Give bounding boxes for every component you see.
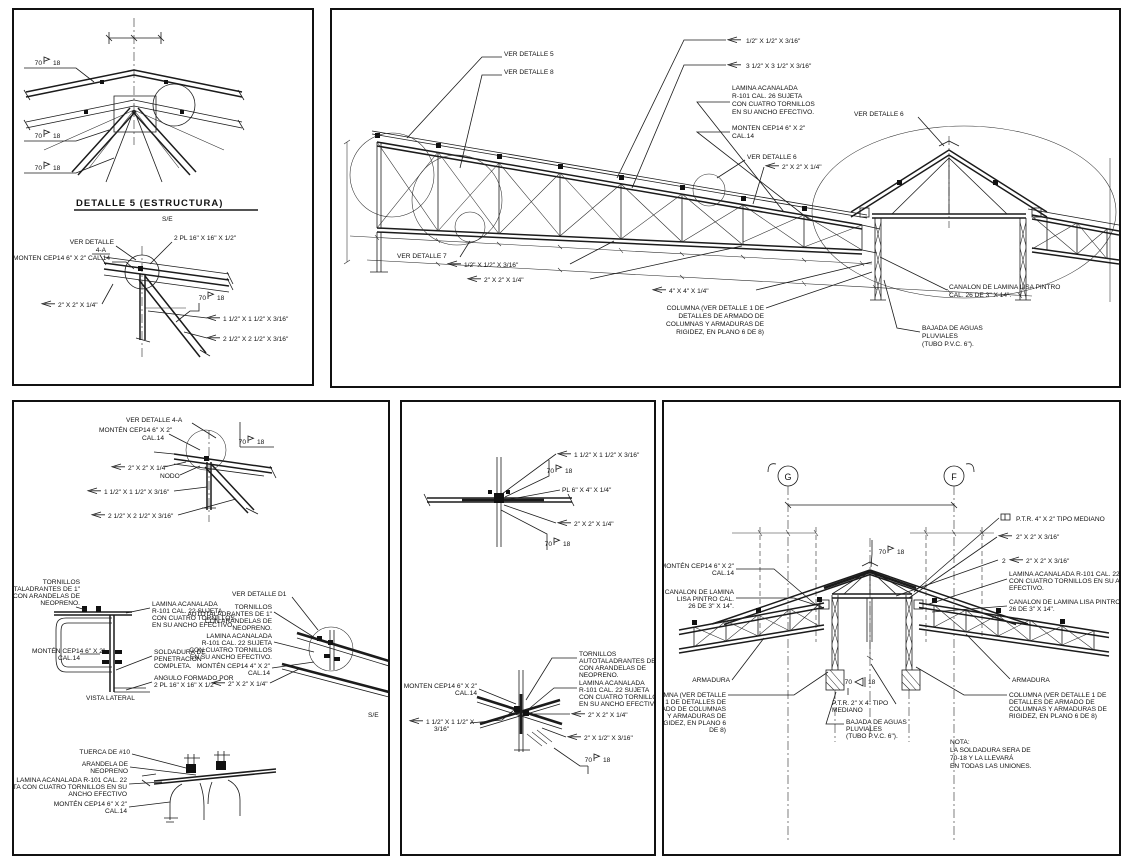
weld-mark-70: 70	[845, 679, 853, 686]
label-canalon: CANALON DE LAMINA LISA PINTRO	[949, 284, 1060, 291]
label-ptr-2x4: P.T.R. 2" X 4" TIPO	[832, 700, 888, 707]
detalle-d1-linework	[282, 627, 388, 697]
label-angle-2x2-316: 2" X 2" X 3/16"	[1026, 558, 1070, 565]
weld-mark-70: 70	[199, 295, 207, 302]
label-armadura-left: ARMADURA	[692, 677, 730, 684]
label-tornillos: CON ARANDELAS DE	[14, 593, 81, 600]
label-ver-detalle-6: VER DETALLE 6	[854, 111, 904, 118]
label-columna-left: ARMADO DE COLUMNAS	[664, 706, 727, 713]
label-bar-half-inch: 1/2" X 1/2" X 3/16"	[746, 38, 801, 45]
label-bajada-pluviales: PLUVIALES	[922, 333, 959, 340]
panel-detalles-nodo: VER DETALLE 4-A MONTÉN CEP14 6" X 2" CAL…	[12, 400, 390, 856]
label-bar-half-inch: 1/2" X 1/2" X 3/16"	[464, 262, 519, 269]
label-lamina: LAMINA ACANALADA	[152, 601, 218, 608]
label-arandela: NEOPRENO	[90, 768, 128, 775]
label-ver-detalle-5: VER DETALLE 5	[504, 51, 554, 58]
label-monten: CAL.14	[142, 435, 164, 442]
grid-bubble-f: F	[951, 472, 957, 482]
label-tornillos: TORNILLOS	[43, 579, 81, 586]
label-lamina-acanalada: LAMINA ACANALADA	[732, 85, 798, 92]
cad-sheet: { "sheet": {"background": "#ffffff", "li…	[0, 0, 1131, 867]
panel-corte-monitor: G F	[662, 400, 1121, 856]
label-columna-right: COLUMNA (VER DETALLE 1 DE	[1009, 692, 1107, 699]
label-columna-right: RIGIDEZ, EN PLANO 6 DE 8)	[1009, 713, 1097, 720]
label-monten-lateral: CAL.14	[58, 655, 80, 662]
label-angle-1-1-2: 1 1/2" X 1 1/2" X	[426, 719, 475, 726]
label-bajada-pluviales: (TUBO P.V.C. 6").	[846, 733, 898, 740]
label-tornillos: TORNILLOS	[579, 651, 617, 658]
elevacion-drawing: VER DETALLE 5 VER DETALLE 8 1/2" X 1/2" …	[332, 10, 1119, 386]
label-vista-lateral: VISTA LATERAL	[86, 695, 135, 702]
label-tornillos-d1: AUTOTALADRANTES DE 1"	[187, 611, 272, 618]
label-tornillos: NEOPRENO.	[579, 672, 619, 679]
label-lamina: EN SU ANCHO EFECTIVO.	[579, 701, 654, 708]
label-canalon-left: LISA PINTRO CAL.	[677, 596, 734, 603]
detalle-5-title-block: DETALLE 5 (ESTRUCTURA) S/E	[74, 198, 258, 223]
label-columna-left: COLUMNA (VER DETALLE	[664, 692, 727, 699]
label-angle-3-1-2: 3 1/2" X 3 1/2" X 3/16"	[746, 63, 812, 70]
label-canalon-right: CANALON DE LAMINA LISA PINTRO CAL.	[1009, 599, 1119, 606]
weld-mark-18: 18	[53, 165, 61, 172]
label-monten: MONTEN CEP14 6" X 2"	[732, 125, 806, 132]
label-ver-detalle-8: VER DETALLE 8	[504, 69, 554, 76]
label-lamina-d1: CON CUATRO TORNILLOS	[189, 647, 272, 654]
panel-elevacion-armadura: VER DETALLE 5 VER DETALLE 8 1/2" X 1/2" …	[330, 8, 1121, 388]
label-tornillos: NEOPRENO.	[40, 600, 80, 607]
panel-detalles-union: 1 1/2" X 1 1/2" X 3/16" 70 18 PL 6" X 4"…	[400, 400, 656, 856]
label-canalon-left: CANALON DE LAMINA	[665, 589, 735, 596]
weld-mark-70: 70	[35, 165, 43, 172]
label-plates: 2 PL 16" X 16" X 1/2"	[174, 235, 237, 242]
grid-bubble-g: G	[784, 472, 791, 482]
label-monten: MONTEN CEP14 6" X 2"	[404, 683, 478, 690]
label-monten-b: MONTÉN CEP14 6" X 2"	[54, 799, 128, 808]
label-lamina-acanalada: R-101 CAL. 26 SUJETA	[732, 93, 803, 100]
label-ptr-4x2: P.T.R. 4" X 2" TIPO MEDIANO	[1016, 516, 1105, 523]
label-columna-left: Y ARMADURAS DE	[667, 713, 726, 720]
label-columna: COLUMNAS Y ARMADURAS DE	[666, 321, 765, 328]
apex-node-linework	[24, 18, 244, 182]
panel-detalle-5: 70 18 70 18 70 18 DETALLE 5 (ESTRUCTURA)…	[12, 8, 314, 386]
label-lamina: R-101 CAL. 22 SUJETA	[579, 687, 650, 694]
label-monten: CAL.14	[455, 690, 477, 697]
detail-scale: S/E	[162, 216, 173, 223]
weld-mark-70: 70	[879, 549, 887, 556]
label-monten: MONTÉN CEP14 6" X 2"	[664, 561, 735, 570]
weld-mark-18: 18	[217, 295, 225, 302]
label-angle-1-1-2: 1 1/2" X 1 1/2" X 3/16"	[574, 452, 640, 459]
apex-node-weld-marks: 70 18 70 18 70 18	[24, 57, 114, 173]
label-bajada-pluviales: BAJADA DE AGUAS	[846, 719, 907, 726]
label-angle-2x2: 2" X 2" X 1/4"	[484, 277, 524, 284]
label-columna-right: DETALLES DE ARMADO DE	[1009, 699, 1095, 706]
weld-mark-18: 18	[53, 133, 61, 140]
label-lamina-b: SUJETA CON CUATRO TORNILLOS EN SU	[14, 784, 127, 791]
label-bajada-pluviales: (TUBO P.V.C. 6").	[922, 341, 974, 348]
label-canalon-right: 26 DE 3" X 14".	[1009, 606, 1055, 613]
weld-mark-70: 70	[545, 541, 553, 548]
label-lamina: EFECTIVO.	[1009, 585, 1044, 592]
label-tornillos: AUTOTALADRANTES DE 1"	[579, 658, 654, 665]
note-line: 70-18 Y LA LLEVARÁ	[950, 753, 1014, 762]
label-lamina-d1: R-101 CAL. 22 SUJETA	[202, 640, 273, 647]
label-lamina-acanalada: EN SU ANCHO EFECTIVO.	[732, 109, 814, 116]
label-angle-1-1-2: 1 1/2" X 1 1/2" X 3/16"	[223, 316, 289, 323]
label-monten-d1: MONTÉN CEP14 4" X 2"	[197, 661, 271, 670]
label-canalon: CAL. 26 DE 3" X 14".	[949, 292, 1011, 299]
lower-node-linework	[100, 246, 233, 358]
grid-lines: G F	[732, 464, 994, 842]
weld-mark-18: 18	[897, 549, 905, 556]
label-columna-left: 1 DE DETALLES DE	[665, 699, 726, 706]
label-lamina: CON CUATRO TORNILLOS	[579, 694, 654, 701]
label-nodo: NODO	[160, 473, 180, 480]
note-title: NOTA:	[950, 739, 970, 746]
label-tornillos: AUTOTALADRANTES DE 1"	[14, 586, 81, 593]
label-monten: MONTÉN CEP14 6" X 2"	[99, 425, 173, 434]
label-columna: RIGIDEZ, EN PLANO 6 DE 8)	[676, 329, 764, 336]
label-angulo-formado: ANGULO FORMADO POR	[154, 675, 234, 682]
label-angle-2x2: 2" X 2" X 1/4"	[574, 521, 614, 528]
label-monten-b: CAL.14	[105, 808, 127, 815]
label-lamina-b: LAMINA ACANALADA R-101 CAL. 22	[16, 777, 127, 784]
label-angle-2-1-2: 2 1/2" X 2 1/2" X 3/16"	[108, 513, 174, 520]
label-lamina-acanalada: CON CUATRO TORNILLOS	[732, 101, 815, 108]
weld-mark-18: 18	[868, 679, 876, 686]
label-angle-2x2: 2" X 2" X 1/4"	[782, 164, 822, 171]
detalles-nodo-drawing: VER DETALLE 4-A MONTÉN CEP14 6" X 2" CAL…	[14, 402, 388, 854]
label-angle-2-1-2: 2 1/2" X 2 1/2" X 3/16"	[223, 336, 289, 343]
label-columna: COLUMNA (VER DETALLE 1 DE	[667, 305, 765, 312]
label-tornillos: CON ARANDELAS DE	[579, 665, 647, 672]
detail-bubbles	[350, 126, 1116, 298]
label-lamina-b: ANCHO EFECTIVO	[68, 791, 127, 798]
note-line: EN TODAS LAS UNIONES.	[950, 763, 1032, 770]
label-columna-left: DE 8)	[709, 727, 726, 734]
label-ver-detalle-ref: 4-A	[96, 247, 107, 254]
label-ver-detalle-7: VER DETALLE 7	[397, 253, 447, 260]
label-angulo-formado: 2 PL 16" X 16" X 1/2"	[154, 682, 217, 689]
label-bajada-pluviales: PLUVIALES	[846, 726, 883, 733]
label-monten: MONTEN CEP14 6" X 2" CAL.14	[14, 255, 110, 262]
label-ptr-2x4: MEDIANO	[832, 707, 863, 714]
label-arandela: ARANDELA DE	[82, 761, 129, 768]
elevation-labels: VER DETALLE 5 VER DETALLE 8 1/2" X 1/2" …	[397, 37, 1060, 348]
union-bottom-linework	[477, 670, 562, 752]
top-node-labels: VER DETALLE 4-A MONTÉN CEP14 6" X 2" CAL…	[88, 417, 274, 520]
weld-mark-70: 70	[547, 468, 555, 475]
label-angle-4x4: 4" X 4" X 1/4"	[669, 288, 709, 295]
label-plate: PL 6" X 4" X 1/4"	[562, 487, 612, 494]
label-soldadura: COMPLETA.	[154, 663, 192, 670]
corte-monitor-drawing: G F	[664, 402, 1119, 854]
label-qty-2: 2	[1002, 558, 1006, 565]
weld-mark-18: 18	[565, 468, 573, 475]
label-lamina: LAMINA ACANALADA R-101 CAL. 22 SUJETA	[1009, 571, 1119, 578]
label-angle-d1: 2" X 2" X 1/4"	[228, 681, 268, 688]
note-line: LA SOLDADURA SERA DE	[950, 747, 1031, 754]
label-angle-2x2-316: 2" X 2" X 3/16"	[1016, 534, 1060, 541]
label-tornillos-d1: TORNILLOS	[235, 604, 273, 611]
label-ver-detalle: VER DETALLE	[70, 239, 115, 246]
detalle-5-drawing: 70 18 70 18 70 18 DETALLE 5 (ESTRUCTURA)…	[14, 10, 312, 384]
label-lamina-d1: EN SU ANCHO EFECTIVO.	[190, 654, 272, 661]
label-angle-2x2: 2" X 2" X 1/4"	[128, 465, 168, 472]
weld-mark-70: 70	[35, 133, 43, 140]
label-canalon-left: 26 DE 3" X 14".	[688, 603, 734, 610]
weld-mark-18: 18	[257, 439, 265, 446]
label-monten: CAL.14	[712, 570, 734, 577]
label-lamina: LAMINA ACANALADA	[579, 680, 645, 687]
label-columna: DETALLES DE ARMADO DE	[678, 313, 764, 320]
weld-mark-70: 70	[585, 757, 593, 764]
label-scale: S/E	[368, 712, 379, 719]
label-tornillos-d1: CON ARANDELAS DE	[205, 618, 273, 625]
label-columna-left: RIGIDEZ, EN PLANO 6	[664, 720, 726, 727]
label-columna-right: COLUMNAS Y ARMADURAS DE	[1009, 706, 1108, 713]
label-angle-2x-half: 2" X 1/2" X 3/16"	[584, 735, 633, 742]
label-ver-detalle-6: VER DETALLE 6	[747, 154, 797, 161]
gable-monitor-linework	[851, 136, 1119, 300]
label-lamina-d1: LAMINA ACANALADA	[206, 633, 272, 640]
label-tuerca: TUERCA DE #10	[79, 749, 130, 756]
detail-title: DETALLE 5 (ESTRUCTURA)	[76, 198, 223, 209]
label-ver-detalle-d1: VER DETALLE D1	[232, 591, 287, 598]
label-angle-1-1-2: 3/16"	[434, 726, 450, 733]
lower-node-labels: VER DETALLE 4-A 2 PL 16" X 16" X 1/2" MO…	[14, 235, 289, 343]
label-ver-detalle-4a: VER DETALLE 4-A	[126, 417, 183, 424]
label-monten-d1: CAL.14	[248, 670, 270, 677]
weld-mark-18: 18	[603, 757, 611, 764]
label-angle-2x2: 2" X 2" X 1/4"	[58, 302, 98, 309]
label-monten: CAL.14	[732, 133, 754, 140]
weld-mark-18: 18	[53, 60, 61, 67]
label-angle-1-1-2: 1 1/2" X 1 1/2" X 3/16"	[104, 489, 170, 496]
label-armadura-right: ARMADURA	[1012, 677, 1050, 684]
weld-mark-70: 70	[35, 60, 43, 67]
detalles-union-drawing: 1 1/2" X 1 1/2" X 3/16" 70 18 PL 6" X 4"…	[402, 402, 654, 854]
dimension-lines	[344, 140, 1110, 302]
label-bajada-pluviales: BAJADA DE AGUAS	[922, 325, 983, 332]
detalle-d1-labels: VER DETALLE D1 TORNILLOS AUTOTALADRANTES…	[187, 591, 379, 719]
label-lamina: CON CUATRO TORNILLOS EN SU ANCHO	[1009, 578, 1119, 585]
label-tornillos-d1: NEOPRENO.	[232, 625, 272, 632]
label-angle-2x2: 2" X 2" X 1/4"	[588, 712, 628, 719]
weld-mark-18: 18	[563, 541, 571, 548]
